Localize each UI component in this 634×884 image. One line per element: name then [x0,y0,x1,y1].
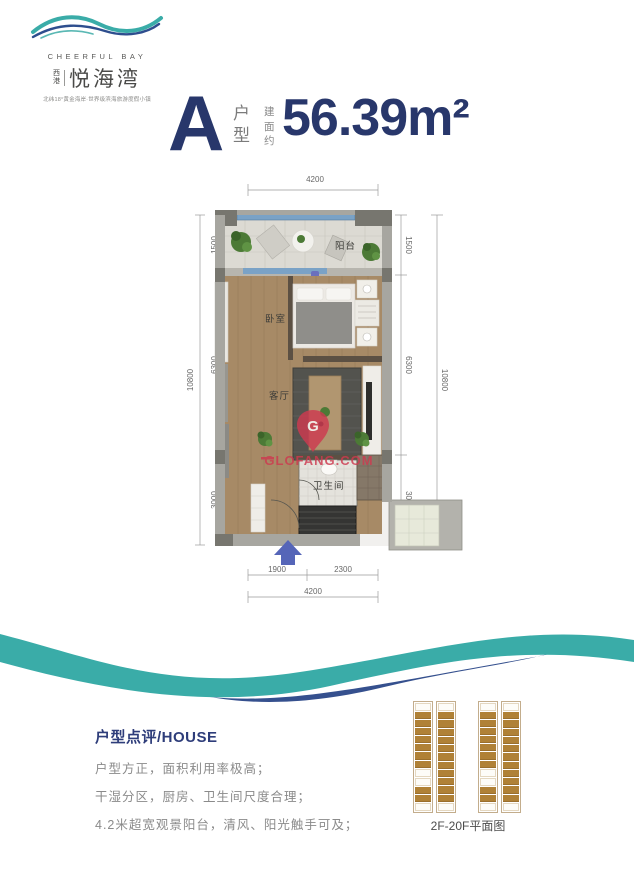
unit-cell [503,745,519,752]
area-prefix-1: 建 [264,105,275,120]
svg-text:1900: 1900 [268,565,286,574]
unit-cell [503,770,519,777]
core-cell [415,703,431,711]
unit-cell [503,753,519,760]
unit-cell [503,786,519,793]
core-cell [438,703,454,711]
unit-cell [503,712,519,719]
unit-cell [438,795,454,802]
brand-name-cn: 悦海湾 [69,63,141,93]
unit-cell [480,795,496,802]
core-cell [480,769,496,777]
unit-cell [438,762,454,769]
unit-cell [438,786,454,793]
unit-cell [503,795,519,802]
core-cell [503,703,519,711]
area-prefix-2: 面 [264,120,275,135]
balcony-label: 阳台 [335,240,356,252]
unit-cell [480,728,496,735]
flyer-page: CHEERFUL BAY 西 港 悦海湾 北纬18°黄金海岸·世界级滨海旅游度假… [0,0,634,884]
unit-cell [503,737,519,744]
unit-cell [503,720,519,727]
unit-cell [438,737,454,744]
unit-cell [480,752,496,759]
brand-prefix-bottom: 港 [53,78,60,86]
unit-cell [415,761,431,768]
unit-cell [415,787,431,794]
unit-cell [438,729,454,736]
svg-text:6300: 6300 [404,356,413,374]
review-line: 干湿分区，厨房、卫生间尺度合理； [95,786,311,805]
floor-plate-strip [436,701,456,813]
unit-cell [503,778,519,785]
brand-logo: CHEERFUL BAY 西 港 悦海湾 北纬18°黄金海岸·世界级滨海旅游度假… [26,10,168,103]
brand-tagline: 北纬18°黄金海岸·世界级滨海旅游度假小镇 [26,95,168,103]
area-value: 56.39m² [282,92,469,144]
unit-cell [438,753,454,760]
unit-cell [438,745,454,752]
logo-waves-icon [27,10,167,46]
wave-divider [0,600,634,712]
floor-plate-strip [413,701,433,813]
unit-type-label: 户 型 [233,103,251,147]
dimension-right: 1500 6300 3000 10800 [395,215,449,545]
unit-cell [415,728,431,735]
floor-plate-pair [413,701,456,813]
floor-plate-diagrams [413,701,521,813]
unit-cell [503,762,519,769]
unit-cell [480,736,496,743]
unit-cell [480,720,496,727]
unit-cell [415,744,431,751]
core-cell [415,803,431,811]
review-line: 4.2米超宽观景阳台，清风、阳光触手可及； [95,814,358,833]
unit-cell [480,761,496,768]
unit-cell [415,795,431,802]
review-heading: 户型点评/HOUSE [95,726,218,747]
plant-icon [362,243,380,261]
watermark-text: GLOFANG.COM [264,453,373,468]
unit-cell [438,712,454,719]
brand-name-row: 西 港 悦海湾 [26,63,168,93]
watermark-pin-letter: G [307,418,319,435]
unit-cell [415,752,431,759]
floor-plate-strip [478,701,498,813]
svg-text:4200: 4200 [306,175,324,184]
floor-plate-pair [478,701,521,813]
svg-text:10800: 10800 [440,369,449,392]
core-cell [415,769,431,777]
unit-cell [415,736,431,743]
brand-name-en: CHEERFUL BAY [26,52,168,61]
core-cell [415,778,431,786]
unit-cell [415,720,431,727]
core-cell [480,803,496,811]
plan-body: 阳台 [215,210,462,565]
dimension-top: 4200 [248,175,378,196]
unit-cell [480,712,496,719]
unit-cell [415,712,431,719]
floor-plate-caption: 2F-20F平面图 [398,817,538,834]
svg-text:4200: 4200 [304,587,322,596]
area-prefix: 建 面 约 [264,105,275,149]
area-prefix-3: 约 [264,134,275,149]
dresser [355,300,379,326]
core-cell [480,703,496,711]
brand-divider [64,70,65,86]
core-cell [480,778,496,786]
svg-text:1500: 1500 [404,236,413,254]
core-cell [503,803,519,811]
unit-cell [438,770,454,777]
bathroom-label: 卫生间 [313,480,345,492]
brand-prefix-top: 西 [53,70,60,78]
unit-cell [480,787,496,794]
review-line: 户型方正，面积利用率极高； [95,758,271,777]
unit-cell [503,729,519,736]
unit-label-bottom: 型 [233,125,251,147]
svg-text:2300: 2300 [334,565,352,574]
bedroom-label: 卧室 [265,313,286,325]
platform [389,500,462,550]
unit-cell [480,744,496,751]
unit-type-letter: A [168,84,224,162]
floor-plate-strip [501,701,521,813]
living-label: 客厅 [269,390,290,402]
unit-label-top: 户 [233,103,251,125]
tv [366,382,372,440]
unit-cell [438,778,454,785]
svg-text:10800: 10800 [186,368,195,391]
brand-prefix: 西 港 [53,70,60,86]
dimension-bottom: 1900 2300 4200 [248,565,378,603]
floor-plan: 4200 10800 1500 6300 3000 [185,168,475,608]
unit-cell [438,720,454,727]
core-cell [438,803,454,811]
